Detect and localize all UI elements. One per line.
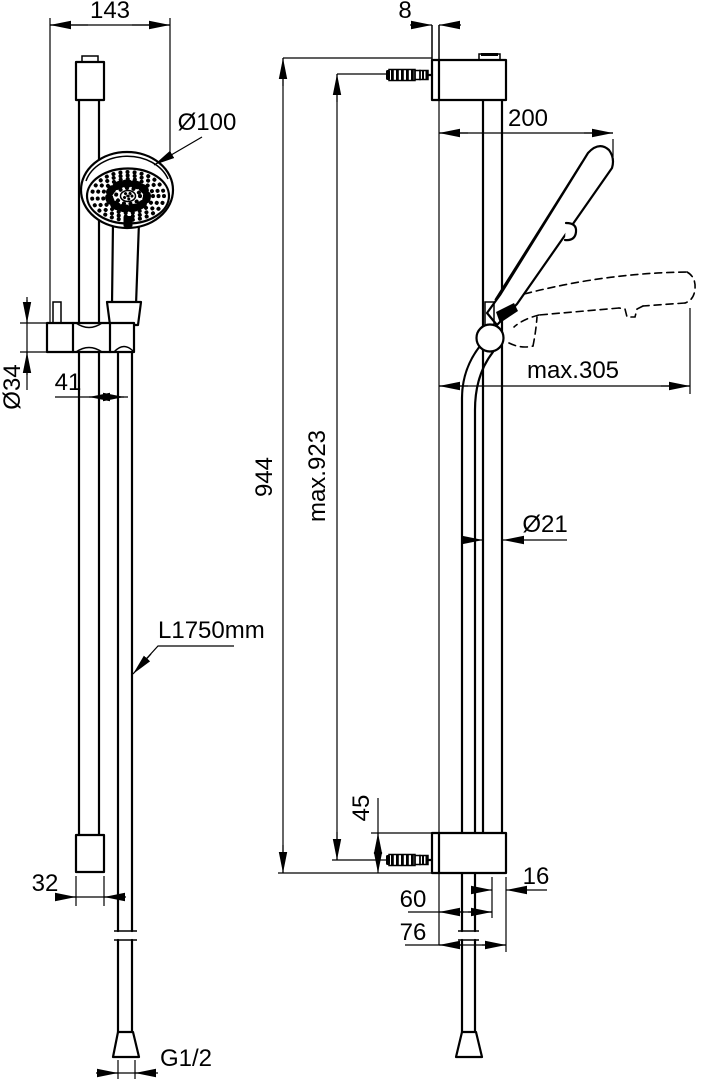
dim-label-60: 60 <box>400 886 427 913</box>
dimension-max-fixing: max.923 <box>304 74 390 860</box>
dimension-rail-diameter: Ø21 <box>463 511 568 540</box>
wall-bracket-top <box>432 53 506 100</box>
head-bottom-tab <box>124 216 133 227</box>
bottom-cap-front <box>76 835 104 872</box>
dim-label-hose-length: L1750mm <box>158 617 265 644</box>
dim-label-944: 944 <box>251 457 278 497</box>
handle-hook-clip <box>565 223 576 240</box>
technical-drawing-page: 143 Ø100 Ø34 41 L1750mm <box>0 0 701 1080</box>
dim-label-200: 200 <box>508 105 548 132</box>
hose-front <box>113 352 139 1057</box>
dim-label-max923: max.923 <box>304 430 331 522</box>
dimension-rail-length: 944 <box>251 58 432 873</box>
hand-shower-handle-front <box>107 222 141 325</box>
hand-shower-handle-side <box>487 146 613 325</box>
dim-label-76: 76 <box>400 919 427 946</box>
pivot-holder <box>477 325 504 352</box>
rail-side <box>483 100 502 833</box>
shower-head-front <box>81 152 173 228</box>
dimension-end-cap-width: 32 <box>32 870 126 906</box>
dimension-axis-to-front: 16 <box>474 863 549 952</box>
dimension-head-diameter: Ø100 <box>154 109 236 165</box>
dim-label-143: 143 <box>90 0 130 24</box>
dim-label-rail-diameter: Ø21 <box>522 511 567 538</box>
dim-label-45: 45 <box>348 795 375 822</box>
side-view: 8 200 max.305 944 <box>251 0 695 1057</box>
dim-label-thread: G1/2 <box>160 1045 212 1072</box>
front-view: 143 Ø100 Ø34 41 L1750mm <box>0 0 265 1079</box>
callout-hose-length: L1750mm <box>133 617 265 674</box>
hose-side <box>456 346 493 1057</box>
hose-connector-cone-side <box>456 1032 482 1057</box>
dimension-bracket-depth: 76 <box>400 919 506 946</box>
dim-label-16: 16 <box>523 863 550 890</box>
shower-rail-set-drawing: 143 Ø100 Ø34 41 L1750mm <box>0 0 701 1080</box>
wall-bracket-bottom <box>432 833 506 873</box>
hose-connector-cone-front <box>113 1032 139 1057</box>
lock-pin-front <box>53 302 61 324</box>
wall-anchor-screw-top <box>386 70 432 81</box>
top-cap-front <box>76 62 104 100</box>
dim-label-slider-diameter: Ø34 <box>0 364 26 409</box>
dim-label-max305: max.305 <box>527 357 619 384</box>
wall-anchor-screw-bottom <box>386 855 432 866</box>
dim-label-8: 8 <box>398 0 411 24</box>
dashed-swivel-outline <box>509 272 695 347</box>
dimension-wall-gap: 8 <box>398 0 461 25</box>
dimension-reach: 200 <box>439 105 613 157</box>
dim-label-41: 41 <box>55 369 82 396</box>
dim-label-32: 32 <box>32 870 59 897</box>
dim-label-head-diameter: Ø100 <box>178 109 237 136</box>
